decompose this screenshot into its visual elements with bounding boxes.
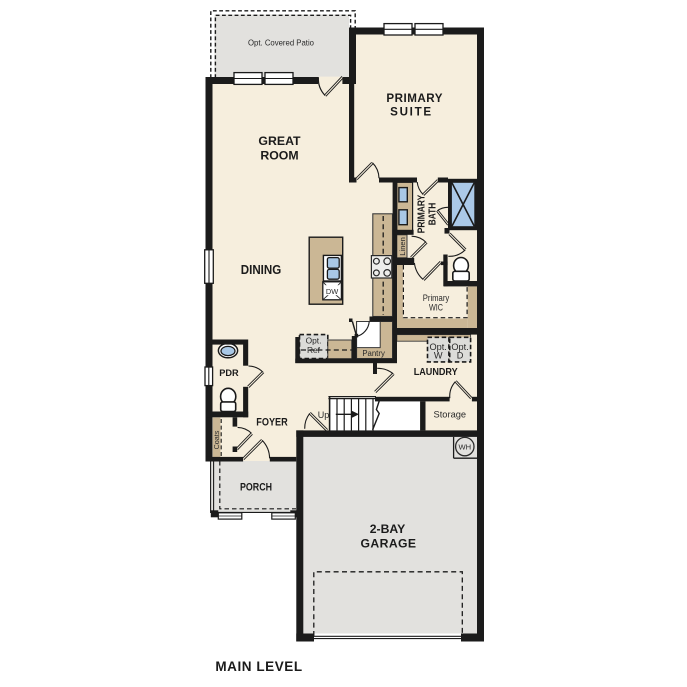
svg-text:2-BAY: 2-BAY [370,522,405,536]
svg-text:DINING: DINING [241,262,282,277]
svg-text:BATH: BATH [428,203,439,226]
svg-text:GREAT: GREAT [258,134,301,148]
svg-text:FOYER: FOYER [256,416,288,428]
svg-text:Primary: Primary [423,293,450,303]
svg-text:SUITE: SUITE [390,105,433,118]
svg-text:Coats: Coats [212,430,221,449]
svg-text:WH: WH [458,442,471,451]
svg-text:W: W [434,351,443,361]
svg-text:LAUNDRY: LAUNDRY [414,367,458,378]
svg-text:MAIN LEVEL: MAIN LEVEL [215,659,302,674]
svg-text:Linen: Linen [398,237,407,256]
svg-text:D: D [457,351,464,361]
svg-text:ROOM: ROOM [260,149,298,163]
svg-text:WIC: WIC [429,303,443,313]
svg-text:DW: DW [326,287,338,296]
svg-text:Up: Up [318,410,330,420]
svg-text:GARAGE: GARAGE [361,537,417,551]
svg-text:PORCH: PORCH [240,482,272,494]
svg-text:PRIMARY: PRIMARY [386,92,443,105]
svg-text:Pantry: Pantry [362,349,385,358]
svg-text:PRIMARY: PRIMARY [417,195,428,234]
svg-text:PDR: PDR [219,368,239,378]
svg-text:Storage: Storage [434,409,467,419]
svg-text:Opt. Covered Patio: Opt. Covered Patio [248,38,314,48]
